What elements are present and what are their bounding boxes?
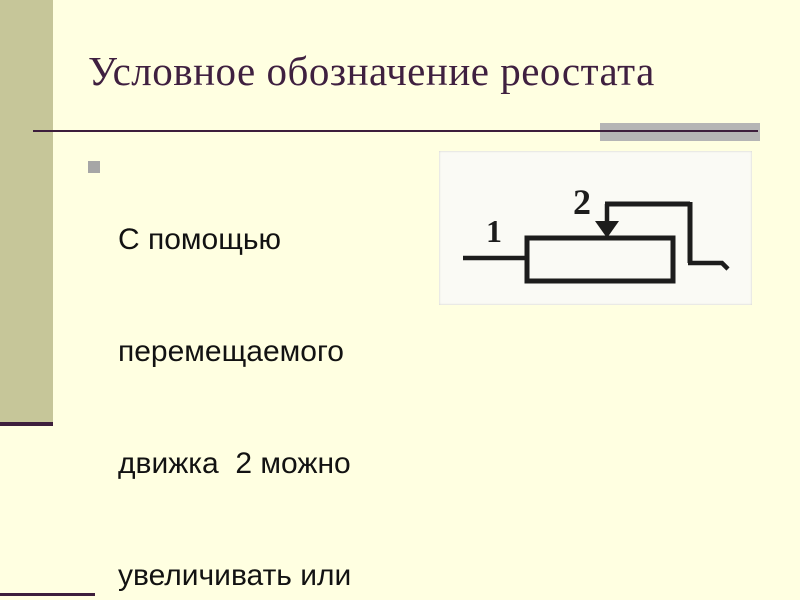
left-band-bottom-rule (0, 422, 53, 426)
bullet-line: увеличивать или (118, 557, 418, 594)
bullet-line: С помощью (118, 221, 418, 258)
title-rule-gray-box (600, 123, 760, 141)
presentation-slide: Условное обозначение реостата С помощью … (0, 0, 800, 600)
contact-2-label: 2 (573, 182, 591, 222)
square-bullet-icon (88, 161, 100, 173)
right-lead-wire (688, 263, 728, 269)
left-accent-band (0, 0, 53, 422)
rheostat-symbol-drawing: 1 2 (439, 151, 752, 305)
resistor-body-rect (527, 238, 673, 281)
bullet-line: движка 2 можно (118, 445, 418, 482)
bottom-left-accent-rule (0, 593, 95, 596)
slider-arrow-head-icon (595, 221, 619, 238)
rheostat-diagram-image: 1 2 (439, 151, 752, 305)
bullet-paragraph: С помощью перемещаемого движка 2 можно у… (118, 146, 418, 600)
slide-title: Условное обозначение реостата (88, 46, 788, 97)
contact-1-label: 1 (486, 213, 502, 249)
bullet-line: перемещаемого (118, 333, 418, 370)
title-underline-rule (33, 130, 758, 132)
